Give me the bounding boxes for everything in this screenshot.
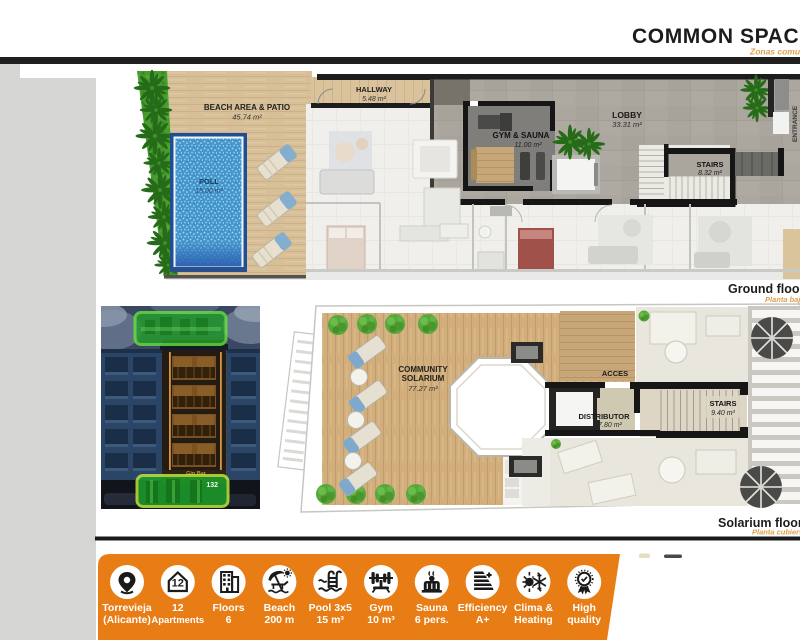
svg-text:Floors: Floors bbox=[213, 602, 245, 614]
svg-text:ACCES: ACCES bbox=[602, 369, 628, 378]
svg-text:6 pers.: 6 pers. bbox=[415, 614, 449, 626]
svg-text:A+: A+ bbox=[476, 614, 490, 626]
svg-text:POLL: POLL bbox=[199, 177, 219, 186]
svg-text:8.32 m²: 8.32 m² bbox=[698, 170, 722, 177]
svg-text:33.31 m²: 33.31 m² bbox=[612, 120, 642, 129]
svg-text:15.00 m²: 15.00 m² bbox=[195, 188, 223, 195]
svg-text:Planta cubierta: Planta cubierta bbox=[752, 528, 800, 537]
svg-text:BEACH AREA & PATIO: BEACH AREA & PATIO bbox=[204, 103, 290, 112]
svg-text:COMMON SPACES: COMMON SPACES bbox=[632, 25, 800, 48]
svg-text:STAIRS: STAIRS bbox=[710, 399, 737, 408]
svg-text:Zonas comunes: Zonas comunes bbox=[749, 47, 800, 57]
svg-text:STAIRS: STAIRS bbox=[697, 160, 724, 169]
svg-text:Torrevieja: Torrevieja bbox=[102, 602, 152, 614]
svg-text:Beach: Beach bbox=[264, 602, 296, 614]
svg-text:9.40 m³: 9.40 m³ bbox=[711, 410, 735, 417]
svg-text:Planta baja: Planta baja bbox=[765, 295, 800, 304]
svg-text:45.74 m²: 45.74 m² bbox=[232, 113, 262, 122]
svg-text:12: 12 bbox=[172, 578, 184, 590]
svg-text:DISTRIBUTOR: DISTRIBUTOR bbox=[578, 412, 630, 421]
svg-text:15 m³: 15 m³ bbox=[316, 614, 344, 626]
svg-text:77.27 m²: 77.27 m² bbox=[408, 384, 438, 393]
svg-text:200 m: 200 m bbox=[265, 614, 295, 626]
svg-text:Gym: Gym bbox=[369, 602, 392, 614]
svg-text:Heating: Heating bbox=[514, 614, 553, 626]
svg-text:Ground floor: Ground floor bbox=[728, 282, 800, 296]
svg-text:Apartments: Apartments bbox=[151, 615, 204, 626]
svg-text:GYM & SAUNA: GYM & SAUNA bbox=[493, 131, 550, 140]
svg-text:(Alicante): (Alicante) bbox=[103, 614, 151, 626]
svg-text:Clima &: Clima & bbox=[514, 602, 554, 614]
svg-text:quality: quality bbox=[567, 614, 601, 626]
svg-text:LOBBY: LOBBY bbox=[612, 110, 642, 120]
svg-text:Efficiency: Efficiency bbox=[458, 602, 508, 614]
svg-text:HALLWAY: HALLWAY bbox=[356, 85, 392, 94]
svg-text:ENTRANCE: ENTRANCE bbox=[792, 105, 799, 142]
svg-text:6: 6 bbox=[226, 614, 232, 626]
svg-text:7.80 m²: 7.80 m² bbox=[598, 422, 622, 429]
svg-text:Pool 3x5: Pool 3x5 bbox=[309, 602, 352, 614]
svg-text:5.48 m²: 5.48 m² bbox=[362, 96, 386, 103]
svg-text:SOLARIUM: SOLARIUM bbox=[402, 374, 445, 383]
svg-text:Sauna: Sauna bbox=[416, 602, 448, 614]
svg-text:132: 132 bbox=[206, 482, 218, 489]
svg-text:10 m³: 10 m³ bbox=[367, 614, 395, 626]
svg-text:COMMUNITY: COMMUNITY bbox=[398, 365, 448, 374]
svg-text:12: 12 bbox=[172, 602, 184, 614]
svg-text:11.00 m²: 11.00 m² bbox=[514, 142, 542, 149]
svg-text:High: High bbox=[573, 602, 596, 614]
